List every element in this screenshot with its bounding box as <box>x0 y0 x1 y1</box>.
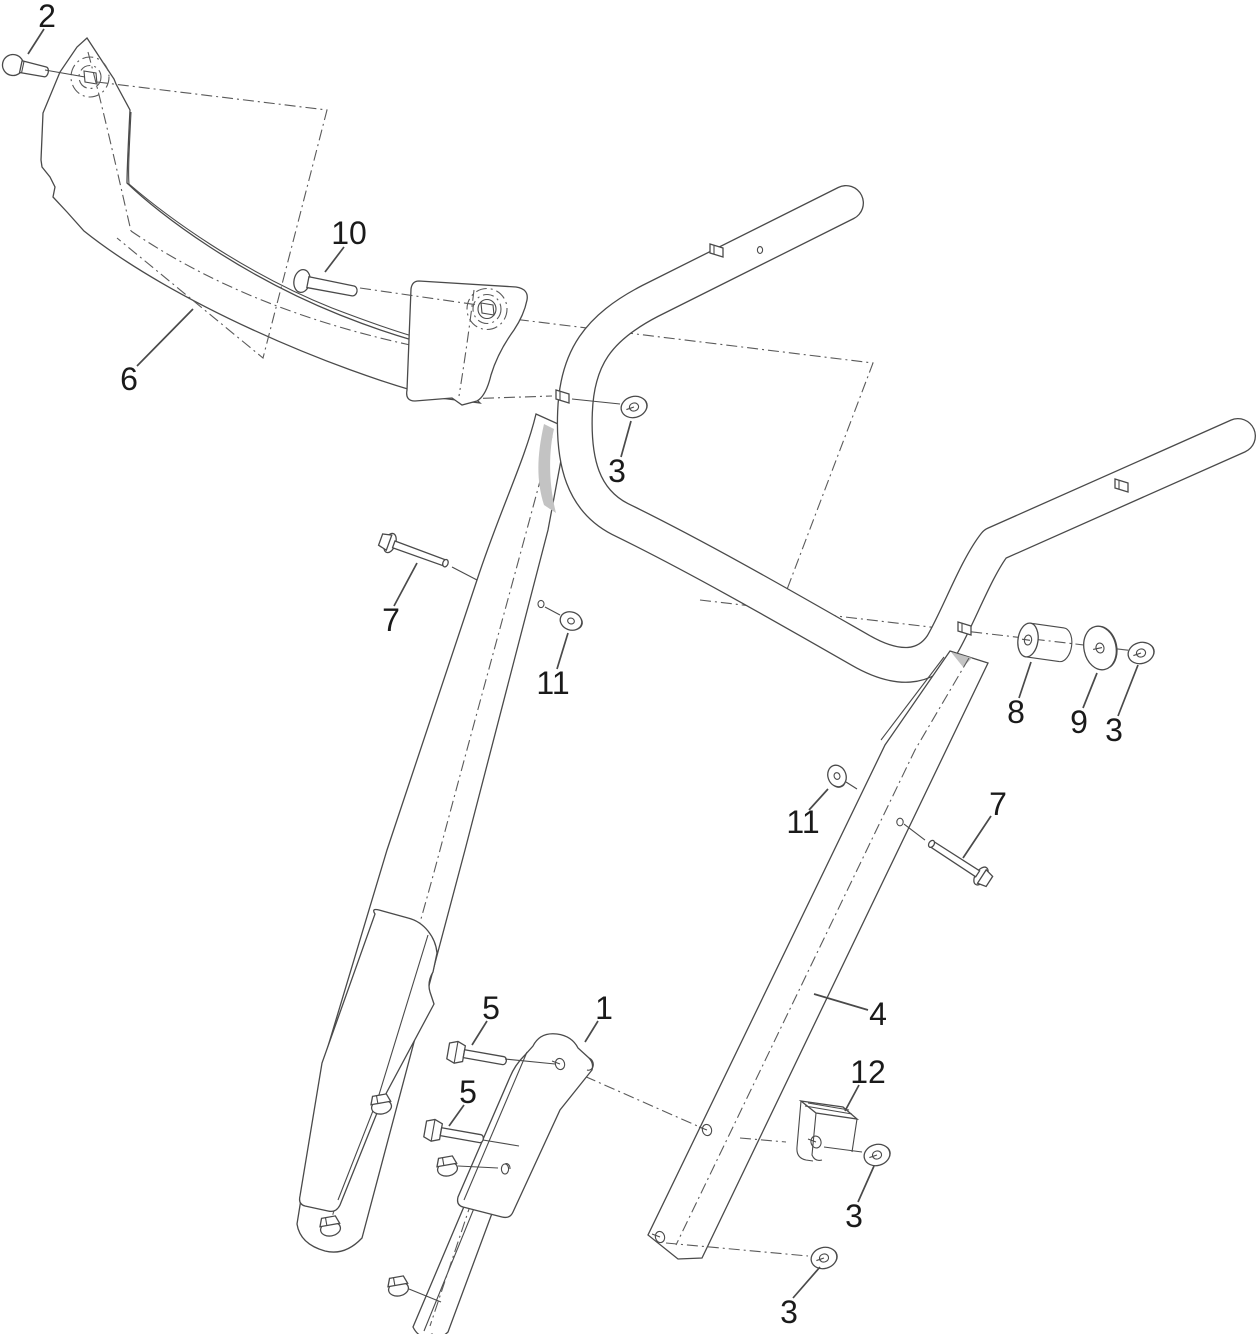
upper-handle-loop <box>575 203 1238 665</box>
parts-diagram-canvas: 2106371189311751541233 <box>0 0 1258 1334</box>
callout-label-7-4: 7 <box>382 602 400 638</box>
nut3-mid-bottom <box>862 1141 893 1168</box>
nut3-right <box>1126 639 1157 666</box>
callout-leader-3-3 <box>621 421 631 457</box>
callout-label-11-9: 11 <box>786 804 819 840</box>
callout-label-11-5: 11 <box>536 665 569 701</box>
bolt5-bottom <box>423 1118 485 1150</box>
nut3-bottom <box>809 1244 840 1271</box>
bolt7-right <box>924 834 995 890</box>
washer11-left <box>558 609 585 634</box>
nut3-top <box>619 393 650 420</box>
bolt7-left-axis <box>452 567 477 580</box>
support-mount-bracket <box>407 281 528 405</box>
callout-leader-7-10 <box>963 816 991 858</box>
clip-part12 <box>797 1101 857 1161</box>
washer11-left-line <box>545 607 560 615</box>
callout-leader-11-5 <box>557 633 568 669</box>
clip-to-nut-line <box>824 1147 862 1152</box>
callout-label-8-6: 8 <box>1007 694 1025 730</box>
callout-label-2-0: 2 <box>38 0 56 34</box>
callout-leader-6-2 <box>137 309 193 366</box>
exploded-parts-diagram: 2106371189311751541233 <box>0 0 1258 1334</box>
callout-leader-7-4 <box>394 563 417 606</box>
pin-part10 <box>292 268 359 303</box>
callout-label-5-11: 5 <box>482 990 500 1026</box>
flange-nut-channel <box>387 1275 410 1297</box>
callout-label-10-1: 10 <box>331 215 367 251</box>
callout-leader-8-6 <box>1019 662 1031 698</box>
lower-tube-right <box>648 651 988 1259</box>
callout-label-3-8: 3 <box>1105 712 1123 748</box>
callout-leader-3-16 <box>858 1166 874 1202</box>
callout-label-3-17: 3 <box>780 1294 798 1330</box>
callout-label-5-13: 5 <box>459 1074 477 1110</box>
washer-part9 <box>1080 623 1121 673</box>
bolt5-top <box>446 1040 508 1072</box>
carriage-bolt-part2 <box>1 53 51 83</box>
callout-label-3-3: 3 <box>608 453 626 489</box>
flange-nut-plate <box>436 1155 459 1177</box>
washer11-right-line <box>846 782 857 789</box>
callout-leader-9-7 <box>1083 673 1097 708</box>
callout-label-4-14: 4 <box>869 996 887 1032</box>
callout-label-7-10: 7 <box>989 786 1007 822</box>
callout-label-9-7: 9 <box>1070 704 1088 740</box>
callout-label-3-16: 3 <box>845 1198 863 1234</box>
callout-label-12-15: 12 <box>850 1054 886 1090</box>
tube-left-bolt-hole <box>538 600 544 607</box>
callout-label-1-12: 1 <box>595 990 613 1026</box>
callout-label-6-2: 6 <box>120 361 138 397</box>
washer11-right <box>825 763 850 790</box>
callout-leader-3-8 <box>1118 665 1138 716</box>
